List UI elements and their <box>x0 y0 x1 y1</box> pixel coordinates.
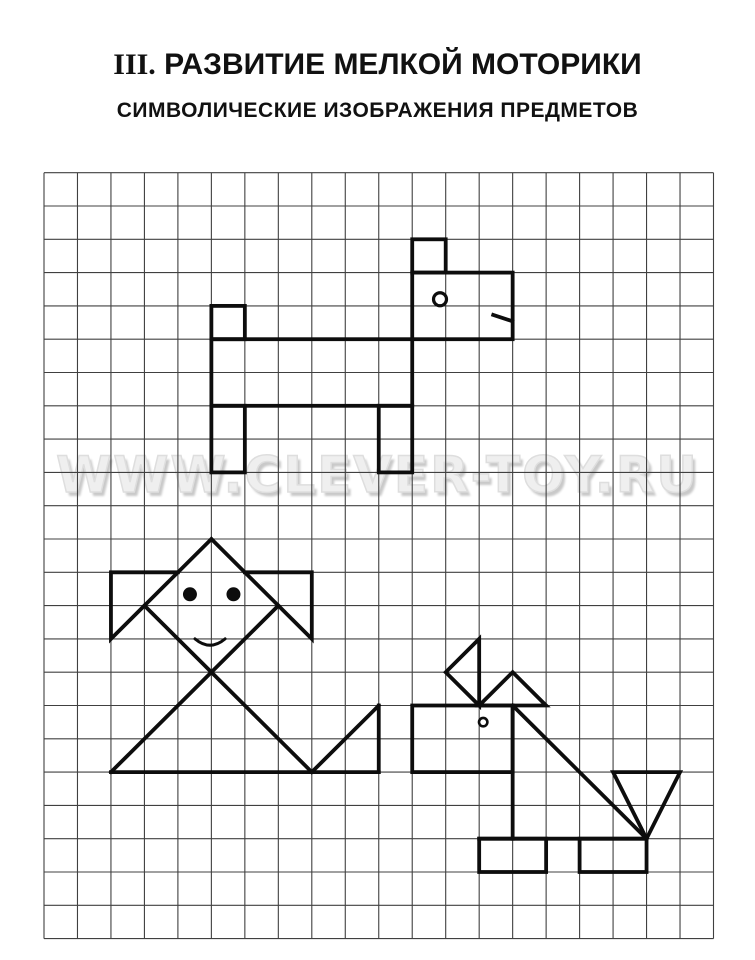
dog-top-line <box>493 315 512 321</box>
workbook-page: III. РАЗВИТИЕ МЕЛКОЙ МОТОРИКИ СИМВОЛИЧЕС… <box>0 0 755 960</box>
dog-top-rect <box>211 306 244 339</box>
grid-svg <box>0 0 755 960</box>
girl-line <box>111 606 278 773</box>
dog-top-eye-circle <box>434 293 447 306</box>
girl-line <box>144 606 311 773</box>
girl-smile-curve <box>195 639 225 645</box>
dog-bottom-eye-circle <box>479 718 487 726</box>
grid-lines <box>44 173 714 939</box>
figure-dog-top <box>211 239 512 472</box>
girl-eye-circle <box>227 588 240 601</box>
dog-top-rect <box>412 239 445 272</box>
girl-eye-circle <box>183 588 196 601</box>
